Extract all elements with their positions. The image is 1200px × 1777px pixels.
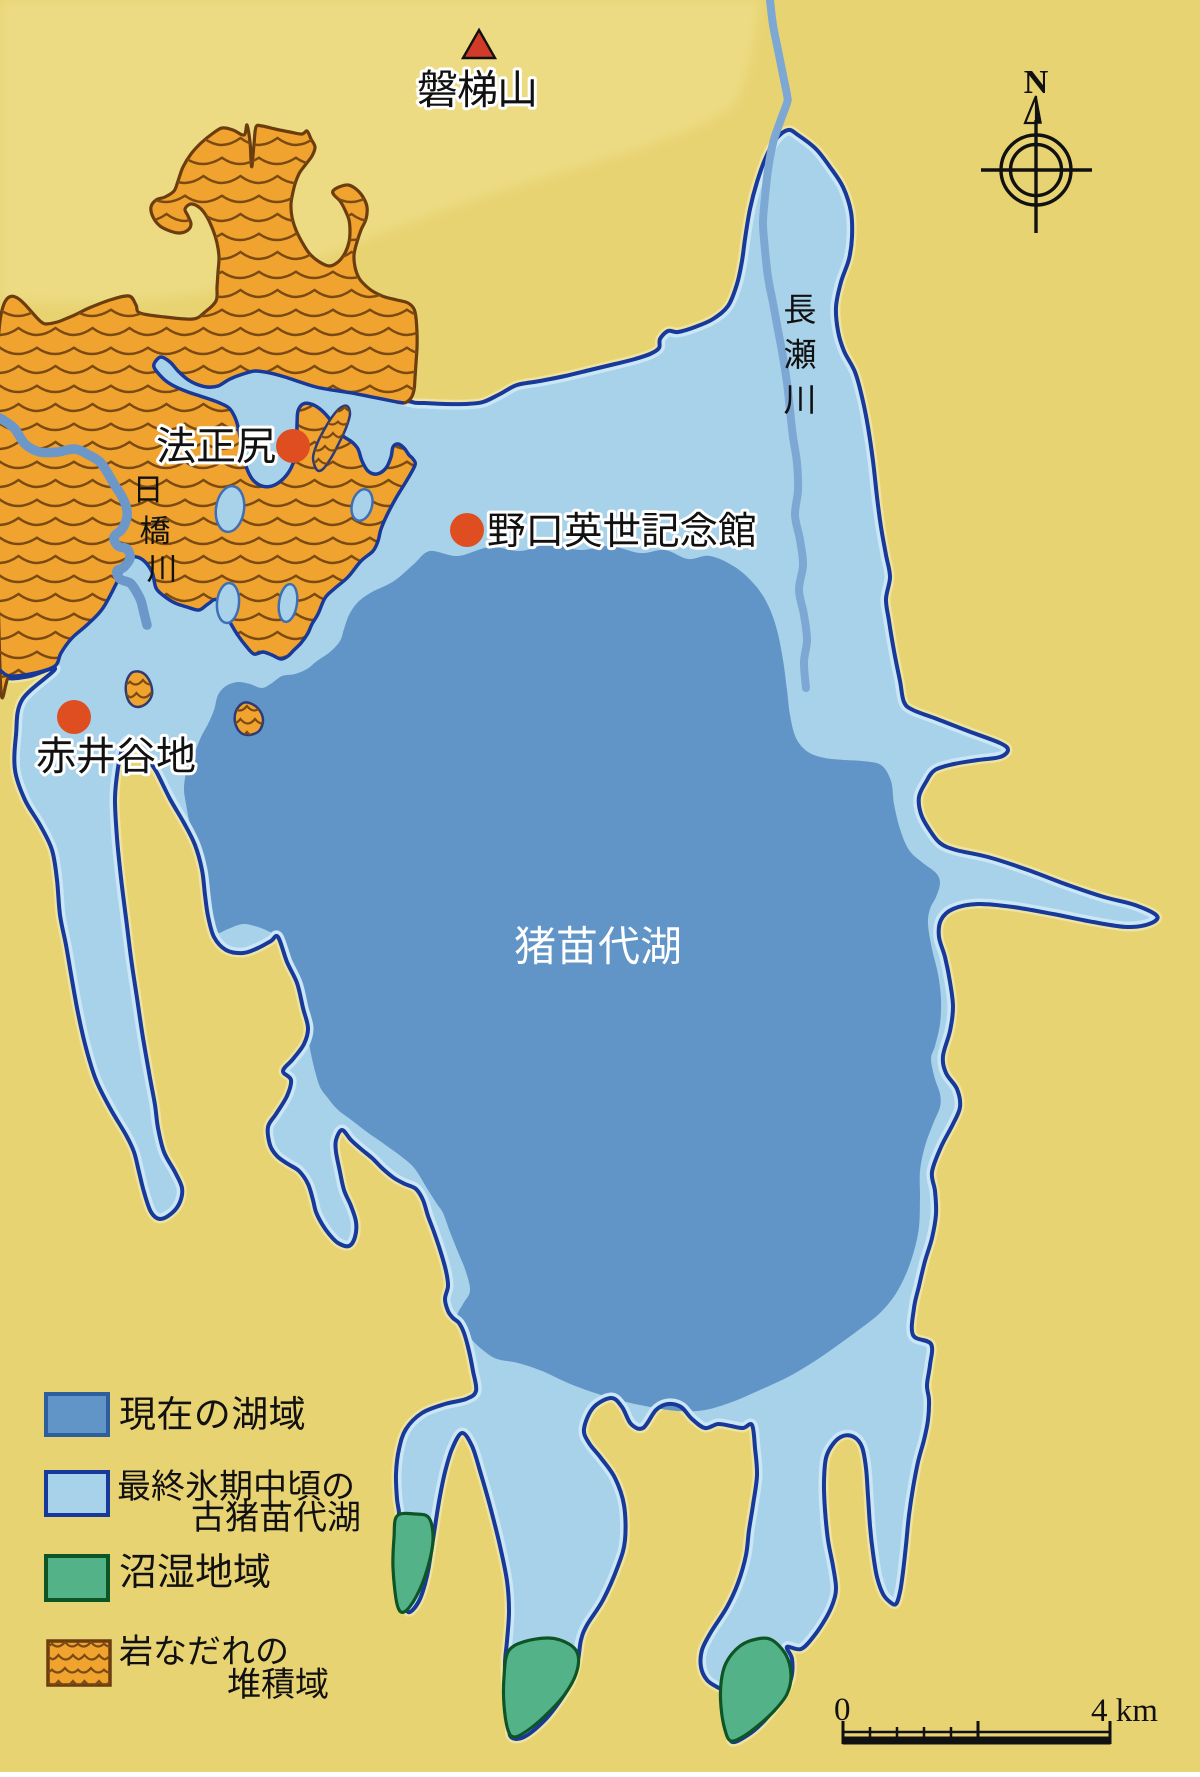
svg-text:0: 0 <box>834 1692 851 1728</box>
svg-text:4 km: 4 km <box>1091 1693 1158 1729</box>
svg-text:N: N <box>1024 64 1049 101</box>
